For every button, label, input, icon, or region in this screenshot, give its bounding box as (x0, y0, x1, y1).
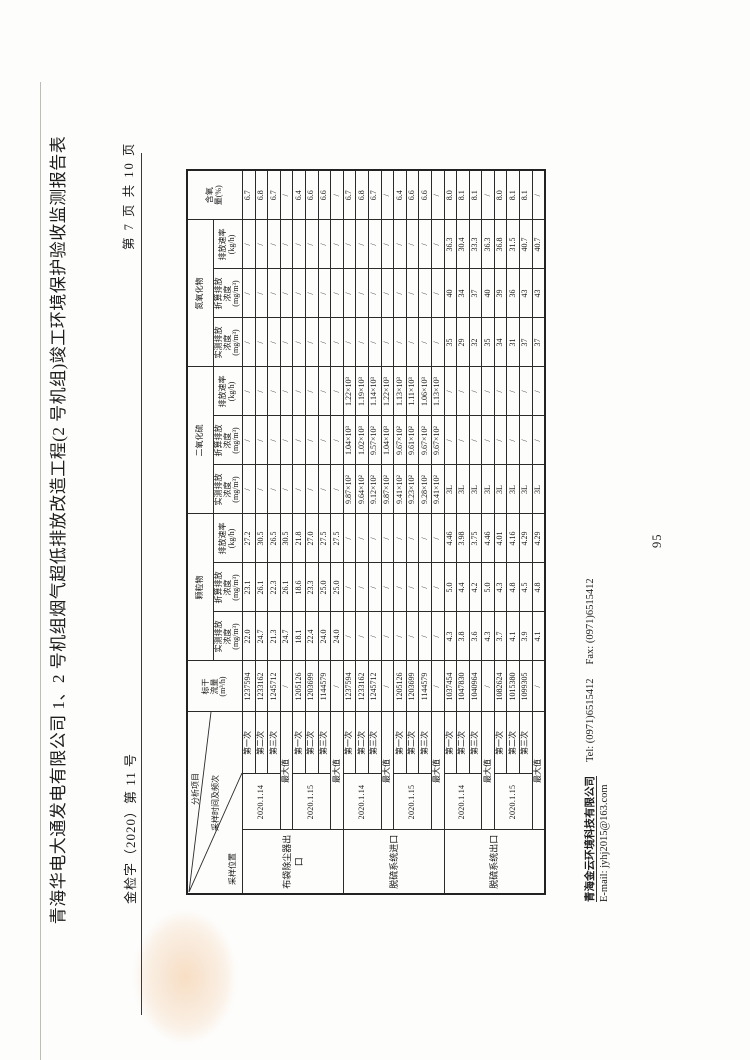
value-cell: 6.8 (356, 170, 369, 220)
value-cell: 25.0 (318, 563, 331, 612)
value-cell: 1037454 (444, 661, 457, 712)
value-cell: / (394, 612, 407, 661)
value-cell: / (394, 318, 407, 367)
value-cell: / (356, 220, 369, 269)
value-cell: 1233162 (356, 661, 369, 712)
value-cell: / (243, 367, 256, 416)
value-cell: 4.3 (444, 612, 457, 661)
subheader-nox-measured: 实测排放浓度(mg/m³) (214, 318, 243, 367)
value-cell: 4.29 (520, 514, 533, 563)
value-cell: 1144579 (318, 661, 331, 712)
value-cell: / (356, 318, 369, 367)
value-cell: 9.67×10² (431, 416, 444, 465)
value-cell: 43 (532, 269, 545, 318)
table-row: 2020.1.15第一次10826243.74.34.013L//343936.… (494, 170, 507, 894)
footer-email: E-mail: jyhj2015@163.com (598, 578, 612, 902)
value-cell: / (318, 465, 331, 514)
value-cell: / (318, 416, 331, 465)
doc-number: 金检字（2020）第 11 号 (120, 753, 139, 904)
value-cell: 6.7 (268, 170, 281, 220)
value-cell: / (305, 465, 318, 514)
value-cell: 1237594 (243, 661, 256, 712)
run-label-cell: 第二次 (457, 712, 470, 774)
value-cell: / (293, 367, 306, 416)
value-cell: 1233162 (255, 661, 268, 712)
value-cell: 29 (457, 318, 470, 367)
location-cell: 脱硫系统出口 (444, 830, 545, 894)
value-cell: / (394, 514, 407, 563)
value-cell: 3L (532, 465, 545, 514)
value-cell: 9.23×10² (406, 465, 419, 514)
value-cell: 27.0 (305, 514, 318, 563)
value-cell: / (431, 563, 444, 612)
value-cell: 9.57×10² (368, 416, 381, 465)
value-cell: / (268, 220, 281, 269)
value-cell: / (494, 416, 507, 465)
value-cell: 4.3 (482, 612, 495, 661)
value-cell: / (343, 318, 356, 367)
value-cell: 24.0 (331, 612, 344, 661)
max-label-cell: 最大值 (482, 712, 495, 830)
value-cell: / (394, 269, 407, 318)
value-cell: 6.8 (255, 170, 268, 220)
run-label-cell: 第一次 (293, 712, 306, 774)
value-cell: 9.87×10² (381, 465, 394, 514)
value-cell: / (331, 220, 344, 269)
value-cell: 9.87×10² (343, 465, 356, 514)
value-cell: 4.4 (457, 563, 470, 612)
value-cell: 1.22×10³ (343, 367, 356, 416)
value-cell: / (457, 367, 470, 416)
value-cell: 1205126 (394, 661, 407, 712)
value-cell: 1.02×10³ (356, 416, 369, 465)
monitoring-table: 分析项目 采样时间及频次 采样位置 标干 流量 (m³/h) 颗粒物 二氧化硫 … (186, 169, 546, 895)
value-cell: 30.4 (457, 220, 470, 269)
value-cell: 1.19×10³ (356, 367, 369, 416)
run-label-cell: 第二次 (255, 712, 268, 774)
run-label-cell: 第三次 (268, 712, 281, 774)
subheader-pm-rate: 排放速率(kg/h) (214, 514, 243, 563)
subheader-so2-converted: 折算排放浓度(mg/m³) (214, 416, 243, 465)
report-page-number: 95 (650, 534, 665, 549)
value-cell: / (305, 318, 318, 367)
value-cell: / (381, 318, 394, 367)
value-cell: / (268, 318, 281, 367)
value-cell: / (280, 661, 293, 712)
value-cell: / (368, 612, 381, 661)
footer-company: 青海金云环境科技有限公司 (585, 776, 597, 902)
diagonal-label-position: 采样位置 (229, 853, 238, 885)
value-cell: / (381, 269, 394, 318)
value-cell: / (268, 465, 281, 514)
value-cell: / (469, 367, 482, 416)
value-cell: 1203699 (305, 661, 318, 712)
value-cell: 6.6 (419, 170, 432, 220)
value-cell: / (356, 514, 369, 563)
value-cell: / (243, 465, 256, 514)
value-cell: 1082624 (494, 661, 507, 712)
subheader-so2-rate: 排放速率(kg/h) (214, 367, 243, 416)
diagonal-label-time: 采样时间及频次 (212, 775, 221, 831)
value-cell: 34 (457, 269, 470, 318)
date-cell: 2020.1.14 (343, 774, 381, 830)
value-cell: 9.67×10² (419, 416, 432, 465)
subheader-pm-converted: 折算排放浓度(mg/m³) (214, 563, 243, 612)
value-cell: 3L (494, 465, 507, 514)
value-cell: 24.7 (280, 612, 293, 661)
value-cell: 1144579 (419, 661, 432, 712)
value-cell: 3L (444, 465, 457, 514)
value-cell: / (406, 318, 419, 367)
value-cell: / (444, 416, 457, 465)
location-cell: 布袋除尘器出口 (243, 830, 344, 894)
value-cell: 8.1 (507, 170, 520, 220)
value-cell: 35 (444, 318, 457, 367)
scanned-page: 青海华电大通发电有限公司 1、2 号机组烟气超低排放改造工程(2 号机组)竣工环… (0, 0, 750, 1060)
table-row-max: 最大值/4.35.04.463L//354036.3/ (482, 170, 495, 894)
value-cell: 8.0 (494, 170, 507, 220)
value-cell: 9.67×10² (394, 416, 407, 465)
table-row: 布袋除尘器出口2020.1.14第一次123759422.023.127.2//… (243, 170, 256, 894)
subheader-pm-measured: 实测排放浓度(mg/m³) (214, 612, 243, 661)
value-cell: 26.1 (280, 563, 293, 612)
date-cell: 2020.1.15 (494, 774, 532, 830)
value-cell: / (381, 514, 394, 563)
value-cell: 6.6 (305, 170, 318, 220)
value-cell: / (293, 465, 306, 514)
value-cell: 4.01 (494, 514, 507, 563)
value-cell: 1.04×10³ (381, 416, 394, 465)
value-cell: 1047830 (457, 661, 470, 712)
max-label-cell: 最大值 (381, 712, 394, 830)
value-cell: / (268, 416, 281, 465)
run-label-cell: 第三次 (419, 712, 432, 774)
group-header-so2: 二氧化硫 (187, 367, 214, 514)
run-label-cell: 第二次 (406, 712, 419, 774)
value-cell: 32 (469, 318, 482, 367)
value-cell: / (406, 612, 419, 661)
value-cell: / (406, 220, 419, 269)
run-label-cell: 第三次 (318, 712, 331, 774)
value-cell: / (331, 318, 344, 367)
max-label-cell: 最大值 (431, 712, 444, 830)
value-cell: 24.7 (255, 612, 268, 661)
value-cell: 9.61×10² (406, 416, 419, 465)
value-cell: / (520, 416, 533, 465)
date-cell: 2020.1.15 (394, 774, 432, 830)
page-indicator: 第 7 页 共 10 页 (118, 142, 137, 250)
value-cell: 30.5 (255, 514, 268, 563)
table-row: 脱硫系统出口2020.1.14第一次10374544.35.04.463L//3… (444, 170, 457, 894)
value-cell: / (318, 318, 331, 367)
value-cell: 4.46 (444, 514, 457, 563)
value-cell: / (532, 170, 545, 220)
value-cell: / (280, 465, 293, 514)
value-cell: / (331, 170, 344, 220)
run-label-cell: 第二次 (305, 712, 318, 774)
value-cell: / (331, 269, 344, 318)
value-cell: / (406, 514, 419, 563)
value-cell: 4.16 (507, 514, 520, 563)
value-cell: 9.41×10² (394, 465, 407, 514)
value-cell: 36.3 (482, 220, 495, 269)
value-cell: / (419, 269, 432, 318)
value-cell: / (280, 367, 293, 416)
subheader-so2-measured: 实测排放浓度(mg/m³) (214, 465, 243, 514)
value-cell: / (406, 269, 419, 318)
value-cell: / (255, 416, 268, 465)
value-cell: / (305, 416, 318, 465)
value-cell: / (482, 661, 495, 712)
value-cell: 18.6 (293, 563, 306, 612)
value-cell: 1205126 (293, 661, 306, 712)
value-cell: 35 (482, 318, 495, 367)
value-cell: / (293, 416, 306, 465)
value-cell: / (394, 563, 407, 612)
value-cell: / (343, 563, 356, 612)
value-cell: 6.6 (406, 170, 419, 220)
value-cell: / (431, 612, 444, 661)
value-cell: / (431, 269, 444, 318)
subheader-nox-converted: 折算排放浓度(mg/m³) (214, 269, 243, 318)
value-cell: / (356, 612, 369, 661)
group-header-nox: 氮氧化物 (187, 220, 214, 367)
value-cell: 6.6 (318, 170, 331, 220)
value-cell: 6.7 (343, 170, 356, 220)
value-cell: 25.0 (331, 563, 344, 612)
run-label-cell: 第一次 (343, 712, 356, 774)
value-cell: / (431, 220, 444, 269)
diagonal-label-project: 分析项目 (192, 773, 201, 805)
value-cell: 9.41×10² (431, 465, 444, 514)
value-cell: / (520, 367, 533, 416)
value-cell: 36.8 (494, 220, 507, 269)
value-cell: / (368, 269, 381, 318)
run-label-cell: 第一次 (394, 712, 407, 774)
value-cell: 1099305 (520, 661, 533, 712)
value-cell: / (243, 220, 256, 269)
value-cell: / (343, 514, 356, 563)
value-cell: 8.1 (469, 170, 482, 220)
value-cell: / (243, 269, 256, 318)
value-cell: 1237594 (343, 661, 356, 712)
value-cell: / (482, 416, 495, 465)
value-cell: 3.7 (494, 612, 507, 661)
value-cell: 18.1 (293, 612, 306, 661)
header-rule (141, 153, 142, 1015)
value-cell: / (532, 661, 545, 712)
value-cell: / (243, 416, 256, 465)
value-cell: 1.06×10³ (419, 367, 432, 416)
value-cell: 6.7 (368, 170, 381, 220)
value-cell: 22.0 (243, 612, 256, 661)
value-cell: / (305, 220, 318, 269)
value-cell: 4.46 (482, 514, 495, 563)
o2-header-cell: 含氧 量(%) (187, 170, 243, 220)
value-cell: 3L (507, 465, 520, 514)
run-label-cell: 第三次 (520, 712, 533, 774)
value-cell: / (381, 170, 394, 220)
value-cell: / (255, 220, 268, 269)
value-cell: 1.04×10³ (343, 416, 356, 465)
value-cell: / (280, 170, 293, 220)
value-cell: / (431, 514, 444, 563)
doc-title: 青海华电大通发电有限公司 1、2 号机组烟气超低排放改造工程(2 号机组)竣工环… (44, 30, 69, 1030)
value-cell: / (280, 220, 293, 269)
group-header-pm: 颗粒物 (187, 514, 214, 661)
value-cell: / (343, 220, 356, 269)
max-label-cell: 最大值 (280, 712, 293, 830)
value-cell: / (368, 514, 381, 563)
value-cell: / (406, 563, 419, 612)
run-label-cell: 第一次 (494, 712, 507, 774)
value-cell: 24.0 (318, 612, 331, 661)
value-cell: / (431, 661, 444, 712)
value-cell: 22.4 (305, 612, 318, 661)
value-cell: / (356, 269, 369, 318)
value-cell: / (318, 367, 331, 416)
value-cell: / (280, 269, 293, 318)
value-cell: 1203699 (406, 661, 419, 712)
value-cell: / (494, 367, 507, 416)
value-cell: 1.13×10³ (431, 367, 444, 416)
max-label-cell: 最大值 (331, 712, 344, 830)
value-cell: 1040964 (469, 661, 482, 712)
value-cell: / (318, 269, 331, 318)
value-cell: / (268, 367, 281, 416)
value-cell: / (293, 269, 306, 318)
value-cell: 8.1 (457, 170, 470, 220)
value-cell: / (280, 416, 293, 465)
value-cell: / (356, 563, 369, 612)
value-cell: / (431, 318, 444, 367)
value-cell: 8.1 (520, 170, 533, 220)
value-cell: / (381, 661, 394, 712)
date-cell: 2020.1.14 (444, 774, 482, 830)
value-cell: / (419, 563, 432, 612)
value-cell: 3L (482, 465, 495, 514)
page-footer: 青海金云环境科技有限公司Tel: (0971)6515412Fax: (0971… (584, 578, 612, 902)
value-cell: 23.3 (305, 563, 318, 612)
value-cell: 40 (444, 269, 457, 318)
value-cell: 36 (507, 269, 520, 318)
value-cell: 9.28×10² (419, 465, 432, 514)
value-cell: 1.14×10³ (368, 367, 381, 416)
value-cell: / (419, 514, 432, 563)
value-cell: 8.0 (444, 170, 457, 220)
value-cell: 1.13×10³ (394, 367, 407, 416)
value-cell: / (507, 416, 520, 465)
value-cell: / (255, 367, 268, 416)
value-cell: 4.8 (507, 563, 520, 612)
value-cell: 6.4 (293, 170, 306, 220)
value-cell: 3.75 (469, 514, 482, 563)
value-cell: 34 (494, 318, 507, 367)
value-cell: / (280, 318, 293, 367)
value-cell: 9.12×10² (368, 465, 381, 514)
value-cell: / (381, 563, 394, 612)
value-cell: 4.2 (469, 563, 482, 612)
run-label-cell: 第二次 (507, 712, 520, 774)
value-cell: / (343, 269, 356, 318)
value-cell: / (243, 318, 256, 367)
value-cell: 4.8 (532, 563, 545, 612)
value-cell: / (318, 220, 331, 269)
value-cell: / (431, 170, 444, 220)
value-cell: 3L (520, 465, 533, 514)
table-row: 2020.1.15第一次1205126///9.41×10²9.67×10²1.… (394, 170, 407, 894)
table-row-max: 最大值////9.41×10²9.67×10²1.13×10³//// (431, 170, 444, 894)
location-cell: 脱硫系统进口 (343, 830, 444, 894)
value-cell: / (381, 612, 394, 661)
value-cell: / (255, 465, 268, 514)
value-cell: 1245712 (268, 661, 281, 712)
value-cell: / (331, 465, 344, 514)
value-cell: / (343, 612, 356, 661)
value-cell: 3.9 (520, 612, 533, 661)
table-row-max: 最大值/4.14.84.293L//374340.7/ (532, 170, 545, 894)
value-cell: 22.3 (268, 563, 281, 612)
value-cell: / (331, 661, 344, 712)
value-cell: 5.0 (444, 563, 457, 612)
value-cell: 40.7 (520, 220, 533, 269)
value-cell: 6.4 (394, 170, 407, 220)
date-cell: 2020.1.14 (243, 774, 281, 830)
value-cell: 3.8 (457, 612, 470, 661)
value-cell: 40.7 (532, 220, 545, 269)
value-cell: 33.3 (469, 220, 482, 269)
value-cell: / (293, 220, 306, 269)
value-cell: 3L (457, 465, 470, 514)
value-cell: 23.1 (243, 563, 256, 612)
run-label-cell: 第三次 (368, 712, 381, 774)
value-cell: 4.5 (520, 563, 533, 612)
value-cell: 43 (520, 269, 533, 318)
paper-edge-line (40, 82, 41, 1060)
value-cell: 4.1 (532, 612, 545, 661)
value-cell: 37 (532, 318, 545, 367)
value-cell: / (394, 220, 407, 269)
flow-header-cell: 标干 流量 (m³/h) (187, 661, 243, 712)
table-row: 脱硫系统进口2020.1.14第一次1237594///9.87×10²1.04… (343, 170, 356, 894)
value-cell: 21.3 (268, 612, 281, 661)
value-cell: 9.64×10² (356, 465, 369, 514)
table-header-row-groups: 分析项目 采样时间及频次 采样位置 标干 流量 (m³/h) 颗粒物 二氧化硫 … (187, 170, 214, 894)
subheader-nox-rate: 排放速率(kg/h) (214, 220, 243, 269)
value-cell: / (457, 416, 470, 465)
value-cell: 3.6 (469, 612, 482, 661)
table-row-max: 最大值/24.025.027.5/////// (331, 170, 344, 894)
table-row-max: 最大值////9.87×10²1.04×10³1.22×10³//// (381, 170, 394, 894)
value-cell: 26.1 (255, 563, 268, 612)
value-cell: / (305, 269, 318, 318)
value-cell: / (255, 269, 268, 318)
run-label-cell: 第二次 (356, 712, 369, 774)
document-scan: 青海华电大通发电有限公司 1、2 号机组烟气超低排放改造工程(2 号机组)竣工环… (0, 0, 750, 1060)
scan-stain (135, 912, 235, 1042)
value-cell: / (268, 269, 281, 318)
value-cell: 4.29 (532, 514, 545, 563)
value-cell: 3.98 (457, 514, 470, 563)
value-cell: 1.11×10³ (406, 367, 419, 416)
value-cell: 27.5 (331, 514, 344, 563)
table-body: 布袋除尘器出口2020.1.14第一次123759422.023.127.2//… (243, 170, 546, 894)
value-cell: 39 (494, 269, 507, 318)
value-cell: / (368, 318, 381, 367)
value-cell: 6.7 (243, 170, 256, 220)
value-cell: 5.0 (482, 563, 495, 612)
value-cell: 1015380 (507, 661, 520, 712)
